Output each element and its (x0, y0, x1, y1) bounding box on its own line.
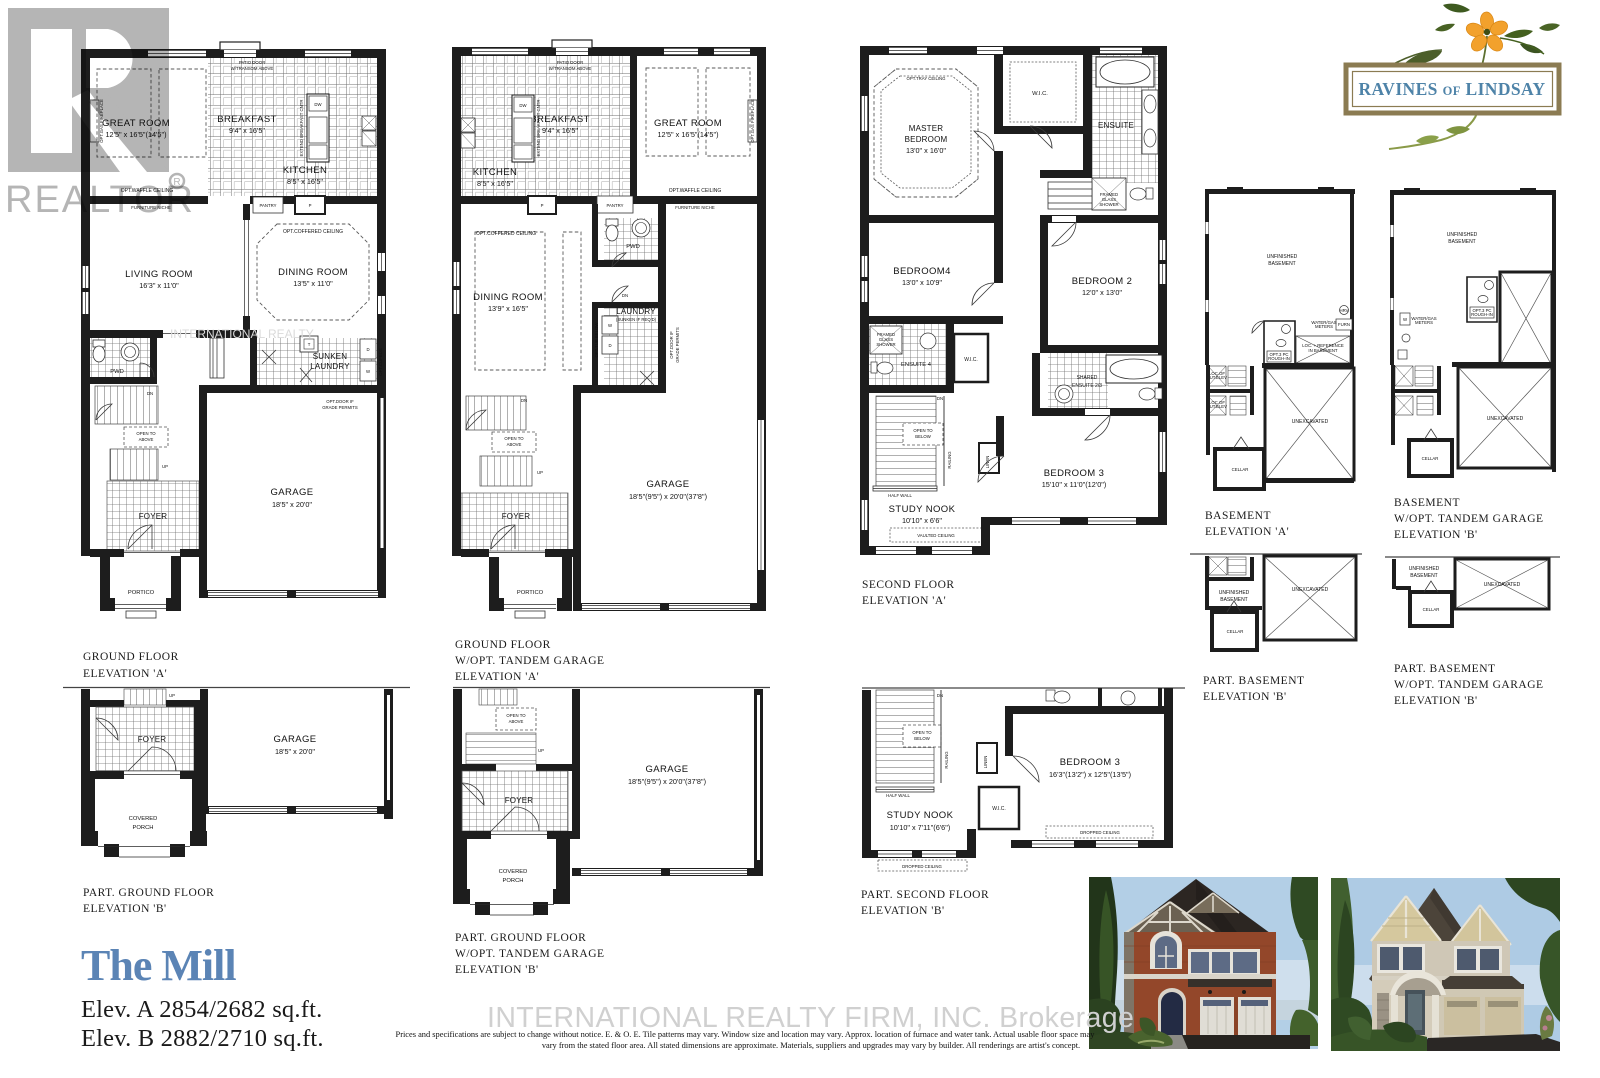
svg-text:BASEMENT: BASEMENT (1394, 497, 1460, 509)
svg-text:(SUNKEN IF REQ'D): (SUNKEN IF REQ'D) (616, 317, 657, 322)
svg-text:PART. BASEMENT: PART. BASEMENT (1394, 663, 1496, 675)
svg-text:DN: DN (521, 398, 527, 403)
svg-text:OPEN TO: OPEN TO (504, 436, 524, 441)
svg-text:METERS: METERS (1415, 320, 1433, 325)
svg-text:KITCHEN: KITCHEN (473, 167, 518, 178)
svg-text:D: D (608, 343, 611, 348)
svg-text:OPEN TO: OPEN TO (913, 428, 933, 433)
svg-text:METERS: METERS (1315, 324, 1333, 329)
svg-text:16'3" x 11'0": 16'3" x 11'0" (139, 281, 179, 290)
svg-text:ENSUITE 4: ENSUITE 4 (901, 362, 932, 368)
svg-text:KITCHEN: KITCHEN (283, 165, 328, 176)
svg-text:PANTRY: PANTRY (606, 203, 623, 208)
svg-text:OPEN TO: OPEN TO (136, 431, 156, 436)
svg-text:INTERNATIONAL REALTY: INTERNATIONAL REALTY (170, 327, 314, 341)
svg-text:PATIO DOOR: PATIO DOOR (239, 60, 265, 65)
svg-text:BELOW: BELOW (914, 736, 930, 741)
svg-text:UNFINISHED: UNFINISHED (1409, 566, 1440, 572)
svg-text:UP: UP (162, 464, 168, 469)
svg-text:OPT.WAFFLE CEILING: OPT.WAFFLE CEILING (669, 188, 722, 194)
svg-text:EXTEND BREAKFAST CNTR: EXTEND BREAKFAST CNTR (299, 100, 304, 157)
svg-text:ELEVATION 'A': ELEVATION 'A' (83, 668, 167, 680)
svg-text:13'0" x 10'9": 13'0" x 10'9" (902, 278, 942, 287)
svg-text:ELEVATION 'A': ELEVATION 'A' (862, 595, 946, 607)
svg-text:10'10" x 7'11"(6'6"): 10'10" x 7'11"(6'6") (890, 823, 951, 832)
svg-text:CELLAR: CELLAR (1423, 607, 1440, 612)
svg-text:FURNITURE NICHE: FURNITURE NICHE (675, 205, 715, 210)
svg-text:FOYER: FOYER (139, 512, 168, 521)
svg-text:DN: DN (937, 693, 943, 698)
svg-text:Elev. B 2882/2710 sq.ft.: Elev. B 2882/2710 sq.ft. (81, 1025, 324, 1052)
svg-text:16'3"(13'2") x 12'5"(13'5"): 16'3"(13'2") x 12'5"(13'5") (1049, 770, 1131, 779)
svg-text:R: R (173, 177, 180, 188)
svg-text:SHOWER: SHOWER (876, 342, 895, 347)
svg-text:P: P (541, 203, 544, 208)
svg-text:UNEXCAVATED: UNEXCAVATED (1487, 416, 1524, 422)
svg-text:BEDROOM 2: BEDROOM 2 (1072, 276, 1133, 287)
svg-text:W/OPT. TANDEM GARAGE: W/OPT. TANDEM GARAGE (455, 948, 605, 960)
svg-text:DROPPED CEILING: DROPPED CEILING (1080, 830, 1120, 835)
svg-text:BASEMENT: BASEMENT (1205, 510, 1271, 522)
svg-text:FOYER: FOYER (502, 512, 531, 521)
svg-text:FOYER: FOYER (505, 796, 534, 805)
svg-text:UNFINISHED: UNFINISHED (1447, 232, 1478, 238)
svg-text:18'5"(9'5") x 20'0"(37'8"): 18'5"(9'5") x 20'0"(37'8") (629, 492, 707, 501)
svg-text:The Mill: The Mill (81, 941, 236, 990)
svg-text:T: T (308, 342, 311, 347)
svg-text:ELEVATION 'B': ELEVATION 'B' (1203, 691, 1287, 703)
svg-text:CELLAR: CELLAR (1422, 456, 1439, 461)
svg-text:GROUND FLOOR: GROUND FLOOR (83, 651, 179, 663)
svg-text:REALTOR: REALTOR (5, 179, 195, 221)
svg-text:W/OPT. TANDEM GARAGE: W/OPT. TANDEM GARAGE (1394, 679, 1544, 691)
svg-text:PART. GROUND FLOOR: PART. GROUND FLOOR (83, 887, 214, 899)
svg-text:ELEVATION 'A': ELEVATION 'A' (1205, 526, 1289, 538)
svg-text:LINEN: LINEN (983, 756, 988, 769)
svg-text:8'5" x 16'5": 8'5" x 16'5" (477, 179, 513, 188)
svg-text:BREAKFAST: BREAKFAST (217, 114, 277, 125)
svg-text:SUNKEN: SUNKEN (313, 352, 348, 361)
svg-text:W.I.C.: W.I.C. (964, 357, 978, 363)
svg-text:PWD: PWD (110, 369, 124, 375)
svg-text:Elev. A 2854/2682 sq.ft.: Elev. A 2854/2682 sq.ft. (81, 996, 322, 1023)
svg-text:W.I.C.: W.I.C. (992, 806, 1006, 812)
svg-text:ROUGH-IN: ROUGH-IN (1471, 312, 1493, 317)
svg-text:PORCH: PORCH (133, 825, 154, 831)
svg-text:GARAGE: GARAGE (270, 487, 313, 498)
svg-text:ELEVATION 'B': ELEVATION 'B' (455, 964, 539, 976)
svg-text:UNEXCAVATED: UNEXCAVATED (1484, 582, 1521, 588)
svg-text:RAILING: RAILING (947, 451, 952, 469)
svg-text:HALF WALL: HALF WALL (888, 493, 912, 498)
svg-text:PART. SECOND FLOOR: PART. SECOND FLOOR (861, 889, 989, 901)
svg-text:CELLAR: CELLAR (1232, 467, 1249, 472)
svg-text:W.I.C.: W.I.C. (1032, 91, 1048, 97)
svg-text:DN: DN (937, 396, 943, 401)
svg-text:ABOVE: ABOVE (139, 437, 154, 442)
svg-text:ELEVATION 'B': ELEVATION 'B' (861, 905, 945, 917)
svg-text:Prices and specifications are: Prices and specifications are subject to… (396, 1030, 1096, 1039)
svg-text:13'9" x 16'5": 13'9" x 16'5" (488, 304, 528, 313)
svg-text:HALF WALL: HALF WALL (886, 793, 910, 798)
svg-text:12'0" x 13'0": 12'0" x 13'0" (1082, 288, 1122, 297)
svg-text:SECOND FLOOR: SECOND FLOOR (862, 579, 955, 591)
svg-text:OPT.GAS FIREPLACE: OPT.GAS FIREPLACE (750, 99, 755, 143)
svg-text:PORCH: PORCH (503, 878, 524, 884)
svg-text:GARAGE: GARAGE (646, 479, 689, 490)
svg-text:PORTICO: PORTICO (517, 590, 544, 596)
svg-text:BEDROOM 3: BEDROOM 3 (1044, 468, 1105, 479)
svg-text:STUDY NOOK: STUDY NOOK (887, 810, 954, 821)
svg-text:EXTEND BREAKFAST CNTR: EXTEND BREAKFAST CNTR (536, 100, 541, 157)
svg-text:BASEMENT: BASEMENT (1410, 573, 1438, 579)
svg-text:18'5" x 20'0": 18'5" x 20'0" (275, 747, 315, 756)
svg-text:9'4" x 16'5": 9'4" x 16'5" (229, 126, 265, 135)
svg-text:15'10" x 11'0"(12'0"): 15'10" x 11'0"(12'0") (1042, 480, 1107, 489)
svg-text:13'0" x 16'0": 13'0" x 16'0" (906, 146, 946, 155)
svg-text:BASEMENT: BASEMENT (1220, 597, 1248, 603)
svg-text:ABOVE: ABOVE (507, 442, 522, 447)
svg-text:ELEVATION 'B': ELEVATION 'B' (1394, 695, 1478, 707)
svg-text:UP: UP (169, 693, 175, 698)
svg-text:OPEN TO: OPEN TO (912, 730, 932, 735)
svg-text:GREAT ROOM: GREAT ROOM (654, 118, 722, 129)
svg-text:LIVING ROOM: LIVING ROOM (125, 269, 193, 280)
svg-text:DINING ROOM: DINING ROOM (278, 267, 348, 278)
svg-text:UNEXCAVATED: UNEXCAVATED (1292, 587, 1329, 593)
svg-text:DW: DW (519, 103, 527, 108)
svg-text:HRV: HRV (1340, 308, 1349, 313)
svg-text:OPT.TRAY CEILING: OPT.TRAY CEILING (907, 76, 947, 81)
svg-text:DROPPED CEILING: DROPPED CEILING (902, 864, 942, 869)
svg-text:12'5" x 16'5"(14'5"): 12'5" x 16'5"(14'5") (657, 130, 718, 139)
svg-text:DN: DN (147, 391, 153, 396)
svg-text:9'4" x 16'5": 9'4" x 16'5" (542, 126, 578, 135)
svg-text:FURN: FURN (1338, 322, 1350, 327)
svg-text:PANTRY: PANTRY (259, 203, 276, 208)
svg-text:8'5" x 16'5": 8'5" x 16'5" (287, 177, 323, 186)
svg-text:IN BASEMENT: IN BASEMENT (1308, 348, 1338, 353)
svg-text:18'5" x 20'0": 18'5" x 20'0" (272, 500, 312, 509)
svg-text:OPT.COFFERED CEILING: OPT.COFFERED CEILING (283, 229, 343, 235)
svg-text:W/OPT. TANDEM GARAGE: W/OPT. TANDEM GARAGE (1394, 513, 1544, 525)
svg-text:LAUNDRY: LAUNDRY (310, 362, 350, 371)
svg-text:BASEMENT: BASEMENT (1268, 261, 1296, 267)
svg-text:SHOWER: SHOWER (1099, 202, 1118, 207)
svg-text:UNFINISHED: UNFINISHED (1267, 254, 1298, 260)
svg-text:MASTER: MASTER (909, 124, 944, 133)
svg-text:STUDY NOOK: STUDY NOOK (889, 504, 956, 515)
svg-text:13'5" x 11'0": 13'5" x 11'0" (293, 279, 333, 288)
svg-text:OPT.DOOR IF: OPT.DOOR IF (669, 331, 674, 359)
svg-text:GARAGE: GARAGE (645, 764, 688, 775)
svg-text:OPEN TO: OPEN TO (506, 713, 526, 718)
svg-text:ELEVATION 'B': ELEVATION 'B' (83, 903, 167, 915)
svg-text:DN: DN (622, 293, 628, 298)
svg-text:OPT.CUPBDS: OPT.CUPBDS (378, 348, 383, 376)
svg-text:BEDROOM 3: BEDROOM 3 (1060, 757, 1121, 768)
svg-text:ROUGH-IN: ROUGH-IN (1268, 356, 1290, 361)
svg-text:CELLAR: CELLAR (1227, 629, 1244, 634)
svg-text:UNFINISHED: UNFINISHED (1219, 590, 1250, 596)
svg-text:18'5"(9'5") x 20'0"(37'8"): 18'5"(9'5") x 20'0"(37'8") (628, 777, 706, 786)
svg-text:PORTICO: PORTICO (128, 590, 155, 596)
svg-text:BEDROOM4: BEDROOM4 (893, 266, 951, 277)
svg-text:ABOVE: ABOVE (509, 719, 524, 724)
svg-text:D: D (366, 347, 369, 352)
svg-text:W/TRANSOM ABOVE: W/TRANSOM ABOVE (231, 66, 274, 71)
svg-text:ENSUITE: ENSUITE (1098, 121, 1134, 130)
svg-text:10'10" x 6'6": 10'10" x 6'6" (902, 516, 942, 525)
svg-text:COVERED: COVERED (499, 869, 528, 875)
svg-text:PART. BASEMENT: PART. BASEMENT (1203, 675, 1305, 687)
svg-text:DINING ROOM: DINING ROOM (473, 292, 543, 303)
svg-text:W/TRANSOM ABOVE: W/TRANSOM ABOVE (549, 66, 592, 71)
svg-text:GRADE PERMITS: GRADE PERMITS (675, 327, 680, 363)
svg-text:P: P (309, 203, 312, 208)
svg-text:VAULTED CEILING: VAULTED CEILING (917, 533, 955, 538)
svg-text:GRADE PERMITS: GRADE PERMITS (322, 405, 358, 410)
svg-text:OPT.COFFERED CEILING: OPT.COFFERED CEILING (476, 231, 536, 237)
svg-text:SHARED: SHARED (1077, 375, 1098, 381)
svg-text:DW: DW (314, 102, 322, 107)
svg-text:UP: UP (538, 748, 544, 753)
svg-text:OPT.TUB BELOW: OPT.TUB BELOW (594, 322, 599, 358)
svg-text:OPT.DOOR IF: OPT.DOOR IF (326, 399, 354, 404)
svg-text:PWD: PWD (626, 244, 640, 250)
svg-text:ENSUITE 2/3: ENSUITE 2/3 (1072, 383, 1102, 389)
svg-text:W/OPT. TANDEM GARAGE: W/OPT. TANDEM GARAGE (455, 655, 605, 667)
svg-text:UNEXCAVATED: UNEXCAVATED (1292, 419, 1329, 425)
svg-text:vary from the stated floor are: vary from the stated floor area. All sta… (542, 1041, 1080, 1050)
svg-text:FOYER: FOYER (138, 735, 167, 744)
svg-text:COVERED: COVERED (129, 816, 158, 822)
svg-text:ELEVATION 'B': ELEVATION 'B' (1394, 529, 1478, 541)
svg-text:LAUNDRY: LAUNDRY (616, 307, 656, 316)
svg-text:PART. GROUND FLOOR: PART. GROUND FLOOR (455, 932, 586, 944)
svg-text:BASEMENT: BASEMENT (1448, 239, 1476, 245)
svg-text:UP: UP (537, 470, 543, 475)
svg-text:BEDROOM: BEDROOM (905, 135, 948, 144)
svg-text:ELEVATION 'A': ELEVATION 'A' (455, 671, 539, 683)
svg-text:GROUND FLOOR: GROUND FLOOR (455, 639, 551, 651)
svg-text:GARAGE: GARAGE (273, 734, 316, 745)
svg-text:PATIO DOOR: PATIO DOOR (557, 60, 583, 65)
svg-text:BELOW: BELOW (915, 434, 931, 439)
svg-text:RAILING: RAILING (944, 751, 949, 769)
